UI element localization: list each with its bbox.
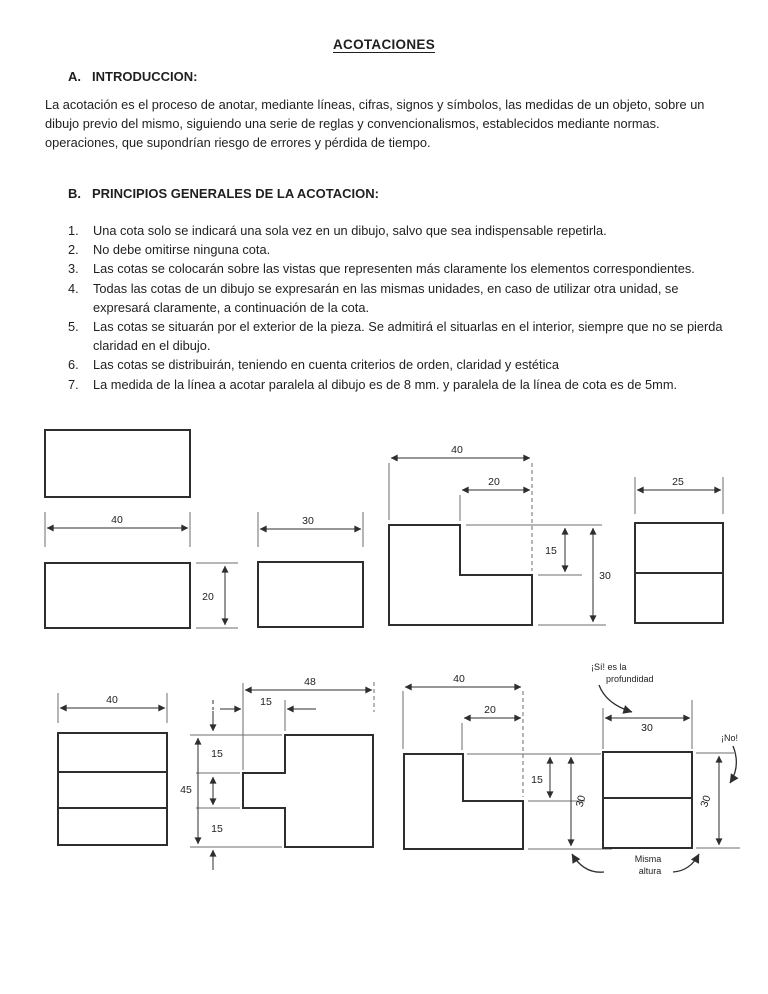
dim-label-height: 30 <box>698 794 713 809</box>
misma-altura-arrow-left <box>572 854 604 872</box>
dim-label-step-width: 20 <box>488 476 500 488</box>
rectangle <box>58 733 167 845</box>
step-outline <box>404 754 523 849</box>
dim-label-width: 40 <box>111 514 123 526</box>
dim-label-total-height: 30 <box>574 794 589 809</box>
si-note-line-2: profundidad <box>606 674 654 684</box>
misma-note-line-2: altura <box>639 866 662 876</box>
dim-label-depth: 30 <box>641 722 653 734</box>
dim-label-width: 25 <box>672 476 684 488</box>
dim-label-total-width: 40 <box>453 673 465 685</box>
dim-label-tab-width: 15 <box>260 696 272 708</box>
dimensioned-rectangle-view <box>45 563 190 628</box>
tab-outline <box>243 735 373 847</box>
rectangle <box>258 562 363 627</box>
plain-rectangle-view <box>45 430 190 497</box>
dim-label-height: 20 <box>202 591 214 603</box>
rectangle <box>603 752 692 848</box>
si-note-line-1: ¡Sí! es la <box>591 662 627 672</box>
figure-step-block-bottom: 40 20 15 30 <box>403 673 612 872</box>
figure-step-block-top: 40 20 15 30 <box>389 444 611 625</box>
document-page: ACOTACIONES A. INTRODUCCION: La acotació… <box>0 0 768 994</box>
no-note-arrow <box>730 746 736 783</box>
dim-label-seg-top: 15 <box>211 748 223 760</box>
dim-label-total-width: 48 <box>304 676 316 688</box>
misma-note-line-1: Misma <box>635 854 662 864</box>
figure-striped-rect-40: 40 <box>58 693 167 845</box>
figure-tab-block-48: 48 15 45 15 15 <box>180 676 374 870</box>
dim-label-total-height: 30 <box>599 570 611 582</box>
figure-rect-25: 25 <box>635 476 723 623</box>
figure-depth-view-annotated: ¡Sí! es la profundidad 30 ¡No! 30 Misma … <box>591 662 740 876</box>
dim-label-total-width: 40 <box>451 444 463 456</box>
no-note: ¡No! <box>721 733 738 743</box>
dim-label-step-width: 20 <box>484 704 496 716</box>
dim-label-width: 30 <box>302 515 314 527</box>
dim-label-width: 40 <box>106 694 118 706</box>
misma-altura-arrow-right <box>673 854 699 872</box>
figure-rect-40x20: 40 20 <box>45 430 238 628</box>
dim-label-seg-bottom: 15 <box>211 823 223 835</box>
dim-label-step-height: 15 <box>545 545 557 557</box>
dim-label-total-height: 45 <box>180 784 192 796</box>
step-outline <box>389 525 532 625</box>
si-note-arrow <box>599 685 632 712</box>
figure-rect-30: 30 <box>258 512 363 627</box>
technical-drawings: 40 20 30 40 20 15 <box>0 0 768 994</box>
dim-label-step-height: 15 <box>531 774 543 786</box>
